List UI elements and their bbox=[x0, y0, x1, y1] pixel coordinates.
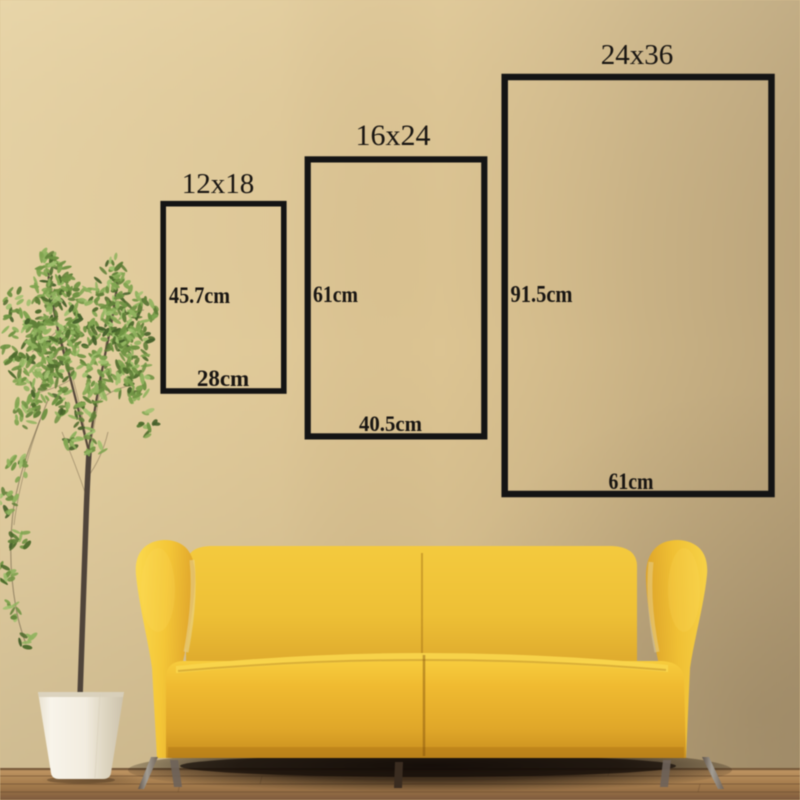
svg-text:91.5cm: 91.5cm bbox=[511, 282, 573, 308]
svg-text:40.5cm: 40.5cm bbox=[359, 411, 422, 436]
svg-text:12x18: 12x18 bbox=[182, 168, 255, 200]
svg-text:16x24: 16x24 bbox=[356, 119, 431, 152]
svg-text:28cm: 28cm bbox=[197, 366, 249, 391]
svg-text:45.7cm: 45.7cm bbox=[169, 283, 230, 308]
svg-text:61cm: 61cm bbox=[313, 282, 358, 308]
svg-text:24x36: 24x36 bbox=[601, 39, 674, 71]
svg-text:61cm: 61cm bbox=[609, 469, 654, 494]
